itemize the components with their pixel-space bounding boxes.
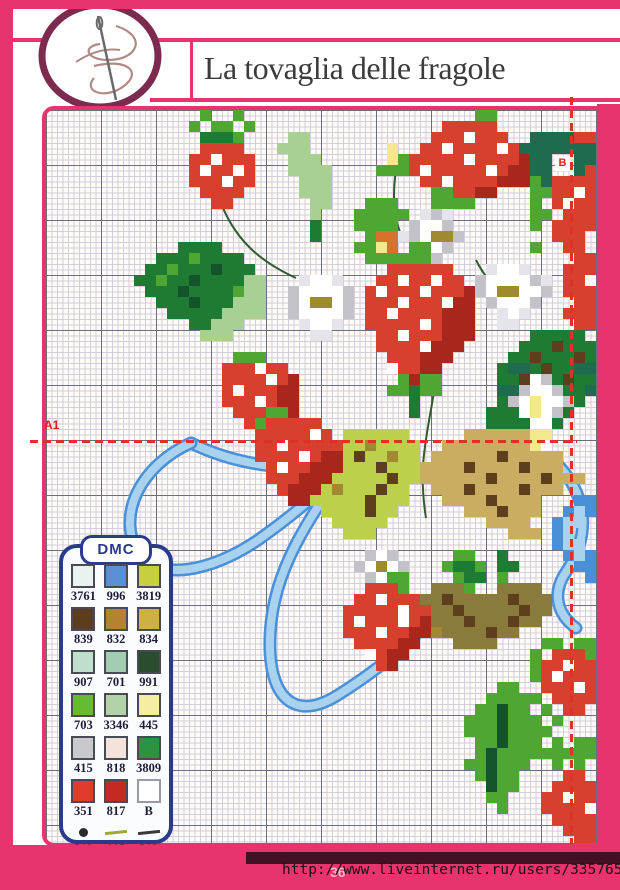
- stitch-cell-central-strawberry: [453, 330, 464, 341]
- stitch-cell-top-big-strawberry: [464, 143, 475, 154]
- stitch-cell-olive-leaf-center: [343, 495, 354, 506]
- stitch-cell-tan-leaf-right: [530, 451, 541, 462]
- stitch-cell-daisy-d: [530, 374, 541, 385]
- stitch-cell-left-strawberry-2: [299, 484, 310, 495]
- stitch-cell-bud-top: [376, 165, 387, 176]
- legend-entry-818: 818: [100, 736, 133, 776]
- stitch-cell-tan-leaf-right: [442, 462, 453, 473]
- stitch-cell-right-berry-top: [552, 187, 563, 198]
- stitch-cell-olive-leaf-center: [343, 506, 354, 517]
- stitch-cell-central-strawberry: [387, 264, 398, 275]
- stitch-cell-central-strawberry: [409, 275, 420, 286]
- stitch-cell-right-mid-strawberry: [574, 682, 585, 693]
- stitch-cell-green-mass: [387, 231, 398, 242]
- stitch-cell-olive-leaf-center: [321, 484, 332, 495]
- stitch-cell-oak-leaf-bottom: [497, 704, 508, 715]
- stitch-cell-central-strawberry: [387, 308, 398, 319]
- stitch-cell-light-leaf-top: [299, 176, 310, 187]
- stitch-cell-central-strawberry: [409, 352, 420, 363]
- stitch-cell-top-big-strawberry: [486, 132, 497, 143]
- stitch-cell-small-strawberry-top: [222, 176, 233, 187]
- stitch-cell-brown-leaf-bottom: [431, 594, 442, 605]
- stitch-cell-left-strawberry-1: [288, 385, 299, 396]
- stitch-cell-dark-mass-right: [574, 374, 585, 385]
- stitch-cell-central-strawberry: [409, 286, 420, 297]
- stitch-cell-dark-mass-right: [552, 352, 563, 363]
- stitch-cell-left-strawberry-2: [299, 473, 310, 484]
- stitch-cell-left-big-leaf: [211, 319, 222, 330]
- stitch-cell-right-berry-top: [574, 198, 585, 209]
- stitch-cell-right-edge-berry: [574, 286, 585, 297]
- stitch-cell-top-big-strawberry: [486, 121, 497, 132]
- stitch-cell-daisy-d: [530, 418, 541, 429]
- stitch-cell-bottom-strawberry: [376, 627, 387, 638]
- legend-code: 445: [139, 718, 158, 733]
- stitch-cell-bottom-strawberry: [365, 605, 376, 616]
- stitch-cell-bottom-strawberry: [409, 638, 420, 649]
- legend-code: 415: [74, 761, 93, 776]
- stitch-cell-olive-leaf-center: [365, 528, 376, 539]
- stitch-cell-light-leaf-top: [288, 143, 299, 154]
- stitch-cell-tan-leaf-right: [552, 484, 563, 495]
- stitch-cell-olive-leaf-center: [365, 506, 376, 517]
- legend-entry-817: 817: [100, 779, 133, 819]
- stitch-cell-left-strawberry-2: [321, 429, 332, 440]
- legend-swatch: [104, 607, 128, 631]
- stitch-cell-dark-mass-right: [519, 341, 530, 352]
- stitch-cell-right-mid-strawberry: [574, 660, 585, 671]
- stitch-cell-daisy-c: [519, 275, 530, 286]
- stitch-cell-top-big-strawberry: [519, 165, 530, 176]
- stitch-cell-central-strawberry: [409, 308, 420, 319]
- stitch-cell-right-mid-strawberry: [552, 693, 563, 704]
- stitch-cell-daisy-d: [552, 407, 563, 418]
- stitch-cell-central-strawberry: [420, 385, 431, 396]
- stitch-cell-oak-leaf-bottom: [508, 693, 519, 704]
- stitch-cell-olive-leaf-center: [332, 506, 343, 517]
- legend-entry-3819: 3819: [132, 564, 165, 604]
- stitch-cell-bottom-strawberry: [398, 649, 409, 660]
- stitch-cell-right-berry-top: [552, 198, 563, 209]
- stitch-cell-left-strawberry-2: [277, 429, 288, 440]
- stitch-cell-bottom-right-berry: [585, 792, 596, 803]
- stitch-cell-tan-leaf-right: [475, 429, 486, 440]
- stitch-cell-left-strawberry-2: [288, 495, 299, 506]
- stitch-cell-right-teal-leaf: [574, 165, 585, 176]
- stitch-cell-olive-leaf-center: [310, 495, 321, 506]
- stitch-cell-left-big-leaf: [244, 297, 255, 308]
- stitch-cell-central-strawberry: [409, 253, 420, 264]
- stitch-cell-oak-leaf-bottom: [486, 770, 497, 781]
- stitch-cell-light-leaf-top: [310, 198, 321, 209]
- stitch-cell-tan-leaf-right: [497, 517, 508, 528]
- stitch-cell-top-big-strawberry: [464, 154, 475, 165]
- stitch-cell-olive-leaf-center: [387, 429, 398, 440]
- stitch-cell-green-mass: [354, 220, 365, 231]
- stitch-cell-central-strawberry: [409, 264, 420, 275]
- stitch-cell-tan-leaf-right: [464, 429, 475, 440]
- stitch-cell-bottom-strawberry: [354, 594, 365, 605]
- stitch-cell-light-leaf-top: [299, 154, 310, 165]
- stitch-cell-right-mid-strawberry: [552, 682, 563, 693]
- stitch-cell-daisy-b: [299, 308, 310, 319]
- stitch-cell-tan-leaf-right: [453, 451, 464, 462]
- stitch-cell-left-big-leaf: [233, 308, 244, 319]
- stitch-cell-dark-mass-right: [508, 374, 519, 385]
- needle-thread-icon: [36, 2, 166, 112]
- stitch-cell-right-berry-top: [552, 220, 563, 231]
- stitch-cell-daisy-c: [530, 275, 541, 286]
- stitch-cell-tan-leaf-right: [519, 495, 530, 506]
- stitch-cell-left-big-leaf: [145, 286, 156, 297]
- stitch-cell-tan-leaf-right: [431, 451, 442, 462]
- stitch-cell-right-edge-blue: [574, 506, 585, 517]
- stitch-cell-daisy-b: [288, 286, 299, 297]
- legend-code: 834: [139, 632, 158, 647]
- stitch-cell-central-strawberry: [376, 275, 387, 286]
- legend-swatch: [104, 564, 128, 588]
- stitch-cell-olive-leaf-center: [365, 495, 376, 506]
- stitch-cell-tan-leaf-right: [497, 473, 508, 484]
- stitch-cell-bottom-strawberry: [365, 594, 376, 605]
- stitch-cell-tan-leaf-right: [530, 484, 541, 495]
- stitch-cell-right-edge-berry: [574, 319, 585, 330]
- stitch-cell-central-strawberry: [464, 330, 475, 341]
- stitch-cell-right-edge-berry: [585, 297, 596, 308]
- stitch-cell-right-edge-berry: [585, 253, 596, 264]
- stitch-cell-dark-mass-right: [497, 385, 508, 396]
- stitch-cell-green-mass: [387, 242, 398, 253]
- stitch-cell-tan-leaf-right: [464, 495, 475, 506]
- stitch-cell-central-strawberry: [387, 385, 398, 396]
- stitch-cell-daisy-e: [354, 561, 365, 572]
- stitch-cell-left-strawberry-2: [277, 451, 288, 462]
- stitch-cell-left-big-leaf: [200, 275, 211, 286]
- stitch-cell-top-big-strawberry: [431, 154, 442, 165]
- stitch-cell-bottom-right-berry: [552, 737, 563, 748]
- stitch-cell-left-strawberry-2: [277, 462, 288, 473]
- stitch-cell-central-strawberry: [376, 330, 387, 341]
- stitch-cell-left-strawberry-1: [233, 374, 244, 385]
- stitch-cell-tan-leaf-right: [453, 495, 464, 506]
- stitch-cell-bud-top: [387, 165, 398, 176]
- stitch-cell-light-leaf-top: [321, 176, 332, 187]
- stitch-cell-top-big-strawberry: [420, 154, 431, 165]
- stitch-cell-daisy-c: [486, 275, 497, 286]
- stitch-cell-daisy-a: [453, 231, 464, 242]
- stitch-cell-bottom-strawberry: [398, 572, 409, 583]
- stitch-cell-tan-leaf-right: [420, 473, 431, 484]
- stitch-cell-right-berry-top: [541, 187, 552, 198]
- stitch-cell-sprig-top: [222, 121, 233, 132]
- stitch-cell-oak-leaf-bottom: [486, 759, 497, 770]
- stitch-cell-tan-leaf-right: [530, 528, 541, 539]
- stitch-cell-oak-leaf-bottom: [486, 737, 497, 748]
- stitch-cell-right-edge-blue: [574, 495, 585, 506]
- stitch-cell-tan-leaf-right: [464, 462, 475, 473]
- legend-swatch: [104, 779, 128, 803]
- legend-grid: 3761996381983983283490770199170333464454…: [67, 564, 165, 880]
- stitch-cell-left-big-leaf: [189, 264, 200, 275]
- legend-code: 701: [107, 675, 126, 690]
- stitch-cell-olive-leaf-center: [343, 484, 354, 495]
- stitch-cell-tan-leaf-right: [453, 484, 464, 495]
- stitch-cell-top-big-strawberry: [497, 176, 508, 187]
- stitch-cell-oak-leaf-bottom: [497, 737, 508, 748]
- page-title: La tovaglia delle fragole: [204, 50, 534, 87]
- stitch-cell-oak-leaf-bottom: [486, 781, 497, 792]
- stitch-cell-dark-mass-right: [585, 385, 596, 396]
- stitch-cell-tan-leaf-right: [486, 484, 497, 495]
- stitch-cell-small-strawberry-top: [211, 165, 222, 176]
- stitch-cell-central-strawberry: [442, 286, 453, 297]
- stitch-cell-olive-leaf-center: [398, 473, 409, 484]
- stitch-cell-green-mass: [365, 220, 376, 231]
- stitch-cell-bottom-right-berry: [541, 803, 552, 814]
- stitch-cell-daisy-d: [530, 396, 541, 407]
- stitch-cell-green-mass: [387, 198, 398, 209]
- stitch-cell-brown-leaf-bottom: [442, 616, 453, 627]
- stitch-cell-brown-leaf-bottom: [475, 627, 486, 638]
- stitch-cell-olive-leaf-center: [343, 528, 354, 539]
- stitch-cell-dark-mass-right: [574, 341, 585, 352]
- legend-swatch: [71, 779, 95, 803]
- stitch-cell-green-mass: [376, 198, 387, 209]
- stitch-cell-daisy-b: [310, 330, 321, 341]
- stitch-cell-left-strawberry-1: [244, 352, 255, 363]
- legend-entry-832: 832: [100, 607, 133, 647]
- stitch-cell-dark-mass-right: [519, 363, 530, 374]
- stitch-cell-small-strawberry-top: [211, 198, 222, 209]
- stitch-cell-olive-leaf-center: [376, 473, 387, 484]
- stitch-cell-daisy-b: [332, 319, 343, 330]
- stitch-cell-daisy-c: [519, 308, 530, 319]
- stitch-cell-central-strawberry: [409, 319, 420, 330]
- stitch-cell-central-strawberry: [420, 297, 431, 308]
- stitch-cell-bottom-strawberry: [376, 594, 387, 605]
- stitch-cell-dark-mass-right: [508, 418, 519, 429]
- stitch-cell-left-big-leaf: [211, 330, 222, 341]
- stitch-cell-right-teal-leaf: [574, 143, 585, 154]
- legend-code: 3346: [103, 718, 128, 733]
- stitch-cell-olive-leaf-center: [387, 462, 398, 473]
- stitch-cell-daisy-b: [299, 297, 310, 308]
- stitch-cell-top-big-strawberry: [442, 121, 453, 132]
- stitch-cell-green-bits: [453, 572, 464, 583]
- stitch-cell-left-strawberry-1: [233, 407, 244, 418]
- stitch-cell-tan-leaf-right: [552, 473, 563, 484]
- stitch-cell-left-big-leaf: [200, 330, 211, 341]
- stitch-cell-light-leaf-top: [310, 231, 321, 242]
- stitch-cell-tan-leaf-right: [541, 462, 552, 473]
- stitch-cell-left-big-leaf: [255, 297, 266, 308]
- stitch-cell-bottom-right-berry: [585, 748, 596, 759]
- stitch-cell-light-leaf-top: [277, 143, 288, 154]
- stitch-cell-right-mid-strawberry: [530, 649, 541, 660]
- stitch-cell-oak-leaf-bottom: [519, 737, 530, 748]
- stitch-cell-olive-leaf-center: [354, 473, 365, 484]
- stitch-cell-left-strawberry-1: [222, 363, 233, 374]
- stitch-cell-right-berry-top: [530, 220, 541, 231]
- stitch-cell-left-big-leaf: [222, 330, 233, 341]
- stitch-cell-right-teal-leaf: [530, 165, 541, 176]
- stitch-cell-daisy-c: [541, 275, 552, 286]
- stitch-cell-right-berry-top: [530, 198, 541, 209]
- stitch-cell-daisy-b: [310, 275, 321, 286]
- stitch-cell-bottom-strawberry: [387, 627, 398, 638]
- stitch-cell-bottom-right-berry: [552, 792, 563, 803]
- top-border-bar: [0, 0, 620, 9]
- stitch-cell-oak-leaf-bottom: [497, 803, 508, 814]
- stitch-cell-brown-leaf-bottom: [453, 583, 464, 594]
- stitch-cell-right-mid-strawberry: [541, 660, 552, 671]
- stitch-cell-olive-leaf-center: [343, 473, 354, 484]
- stitch-cell-brown-leaf-bottom: [475, 616, 486, 627]
- stitch-cell-left-big-leaf: [178, 264, 189, 275]
- stitch-cell-tan-leaf-right: [497, 462, 508, 473]
- french-knot-symbol: [79, 828, 88, 837]
- stitch-cell-daisy-d: [519, 407, 530, 418]
- stitch-cell-oak-leaf-bottom: [508, 737, 519, 748]
- stitch-cell-oak-leaf-bottom: [508, 704, 519, 715]
- stitch-cell-daisy-b: [310, 286, 321, 297]
- legend-code: B: [144, 804, 152, 819]
- legend-swatch: [137, 779, 161, 803]
- stitch-cell-brown-leaf-bottom: [475, 638, 486, 649]
- stitch-cell-olive-leaf-center: [387, 484, 398, 495]
- stitch-cell-tan-leaf-right: [519, 517, 530, 528]
- legend-entry-3346: 3346: [100, 693, 133, 733]
- stitch-cell-sprig-top: [189, 121, 200, 132]
- legend-code: 996: [107, 589, 126, 604]
- stitch-cell-tan-leaf-right: [541, 484, 552, 495]
- stitch-cell-right-berry-top: [530, 209, 541, 220]
- stitch-cell-tan-leaf-right: [475, 451, 486, 462]
- stitch-cell-left-big-leaf: [200, 297, 211, 308]
- stitch-cell-oak-leaf-bottom: [486, 726, 497, 737]
- stitch-cell-left-strawberry-2: [310, 484, 321, 495]
- stitch-cell-top-big-strawberry: [442, 176, 453, 187]
- stitch-cell-left-big-leaf: [211, 308, 222, 319]
- stitch-cell-daisy-b: [288, 297, 299, 308]
- stitch-cell-bottom-right-berry: [552, 814, 563, 825]
- stitch-cell-daisy-e: [365, 561, 376, 572]
- stitch-cell-olive-leaf-center: [365, 473, 376, 484]
- stitch-cell-bottom-strawberry: [365, 627, 376, 638]
- stitch-cell-daisy-a: [442, 209, 453, 220]
- stitch-cell-oak-leaf-bottom: [475, 748, 486, 759]
- stitch-cell-left-big-leaf: [244, 286, 255, 297]
- stitch-cell-tan-leaf-right: [453, 473, 464, 484]
- stitch-cell-bottom-strawberry: [409, 594, 420, 605]
- stitch-cell-brown-leaf-bottom: [420, 594, 431, 605]
- stitch-cell-daisy-e: [365, 572, 376, 583]
- stitch-cell-right-mid-strawberry: [530, 671, 541, 682]
- stitch-cell-brown-leaf-bottom: [431, 605, 442, 616]
- stitch-cell-right-berry-top: [585, 187, 596, 198]
- stitch-cell-daisy-c: [475, 286, 486, 297]
- stitch-cell-olive-leaf-center: [354, 506, 365, 517]
- stitch-cell-oak-leaf-bottom: [475, 726, 486, 737]
- stitch-cell-top-big-strawberry: [409, 154, 420, 165]
- legend-code: 3761: [71, 589, 96, 604]
- stitch-cell-tan-leaf-right: [519, 462, 530, 473]
- stitch-cell-bottom-strawberry: [420, 627, 431, 638]
- stitch-cell-daisy-d: [541, 429, 552, 440]
- stitch-cell-green-bits: [508, 561, 519, 572]
- stitch-cell-olive-leaf-center: [343, 517, 354, 528]
- stitch-cell-left-strawberry-1: [277, 363, 288, 374]
- stitch-cell-top-big-strawberry: [486, 110, 497, 121]
- stitch-cell-bottom-right-berry: [574, 803, 585, 814]
- stitch-cell-brown-leaf-bottom: [475, 605, 486, 616]
- stitch-cell-olive-leaf-center: [365, 462, 376, 473]
- stitch-cell-olive-leaf-center: [365, 484, 376, 495]
- stitch-cell-right-mid-strawberry: [574, 693, 585, 704]
- stitch-cell-tan-leaf-right: [508, 528, 519, 539]
- stitch-cell-olive-leaf-center: [398, 429, 409, 440]
- stitch-cell-brown-leaf-bottom: [519, 594, 530, 605]
- stitch-cell-daisy-b: [343, 297, 354, 308]
- stitch-cell-left-strawberry-1: [244, 363, 255, 374]
- dmc-logo: DMC: [80, 535, 152, 565]
- stitch-cell-left-strawberry-2: [277, 484, 288, 495]
- stitch-cell-bottom-strawberry: [354, 638, 365, 649]
- stitch-cell-top-big-strawberry: [431, 176, 442, 187]
- stitch-cell-olive-leaf-center: [332, 484, 343, 495]
- left-border-bar: [0, 0, 13, 890]
- stitch-cell-tan-leaf-right: [475, 473, 486, 484]
- stitch-cell-right-mid-strawberry: [541, 671, 552, 682]
- stitch-cell-left-big-leaf: [233, 253, 244, 264]
- stitch-cell-oak-leaf-bottom: [508, 682, 519, 693]
- stitch-cell-dark-mass-right: [585, 374, 596, 385]
- stitch-cell-top-big-strawberry: [508, 154, 519, 165]
- repeat-guide-dashed-line-horizontal: [30, 440, 577, 443]
- stitch-cell-bottom-right-berry: [574, 759, 585, 770]
- stitch-cell-left-strawberry-1: [244, 407, 255, 418]
- legend-code: 351: [74, 804, 93, 819]
- stitch-cell-bottom-strawberry: [365, 616, 376, 627]
- stitch-cell-left-big-leaf: [167, 275, 178, 286]
- stitch-cell-dark-mass-right: [497, 418, 508, 429]
- stitch-cell-left-strawberry-1: [233, 385, 244, 396]
- stitch-cell-daisy-a: [442, 231, 453, 242]
- stitch-cell-oak-leaf-bottom: [475, 737, 486, 748]
- stitch-cell-central-strawberry: [442, 330, 453, 341]
- stitch-cell-left-strawberry-2: [288, 473, 299, 484]
- stitch-cell-left-big-leaf: [167, 286, 178, 297]
- stitch-cell-olive-leaf-center: [354, 451, 365, 462]
- stitch-cell-dark-mass-right: [585, 341, 596, 352]
- stitch-cell-top-big-strawberry: [464, 198, 475, 209]
- legend-swatch: [71, 693, 95, 717]
- stitch-cell-left-strawberry-1: [288, 407, 299, 418]
- stitch-cell-top-big-strawberry: [475, 143, 486, 154]
- stitch-cell-left-big-leaf: [255, 308, 266, 319]
- stitch-cell-left-strawberry-2: [332, 462, 343, 473]
- stitch-cell-left-big-leaf: [222, 275, 233, 286]
- stitch-cell-left-strawberry-2: [288, 429, 299, 440]
- stitch-cell-brown-leaf-bottom: [464, 605, 475, 616]
- stitch-cell-bottom-right-berry: [552, 803, 563, 814]
- stitch-cell-right-edge-berry: [574, 275, 585, 286]
- stitch-cell-sprig-top: [200, 110, 211, 121]
- stitch-cell-right-teal-leaf: [552, 143, 563, 154]
- stitch-cell-right-edge-berry: [574, 297, 585, 308]
- stitch-cell-right-berry-top: [574, 220, 585, 231]
- stitch-cell-tan-leaf-right: [508, 462, 519, 473]
